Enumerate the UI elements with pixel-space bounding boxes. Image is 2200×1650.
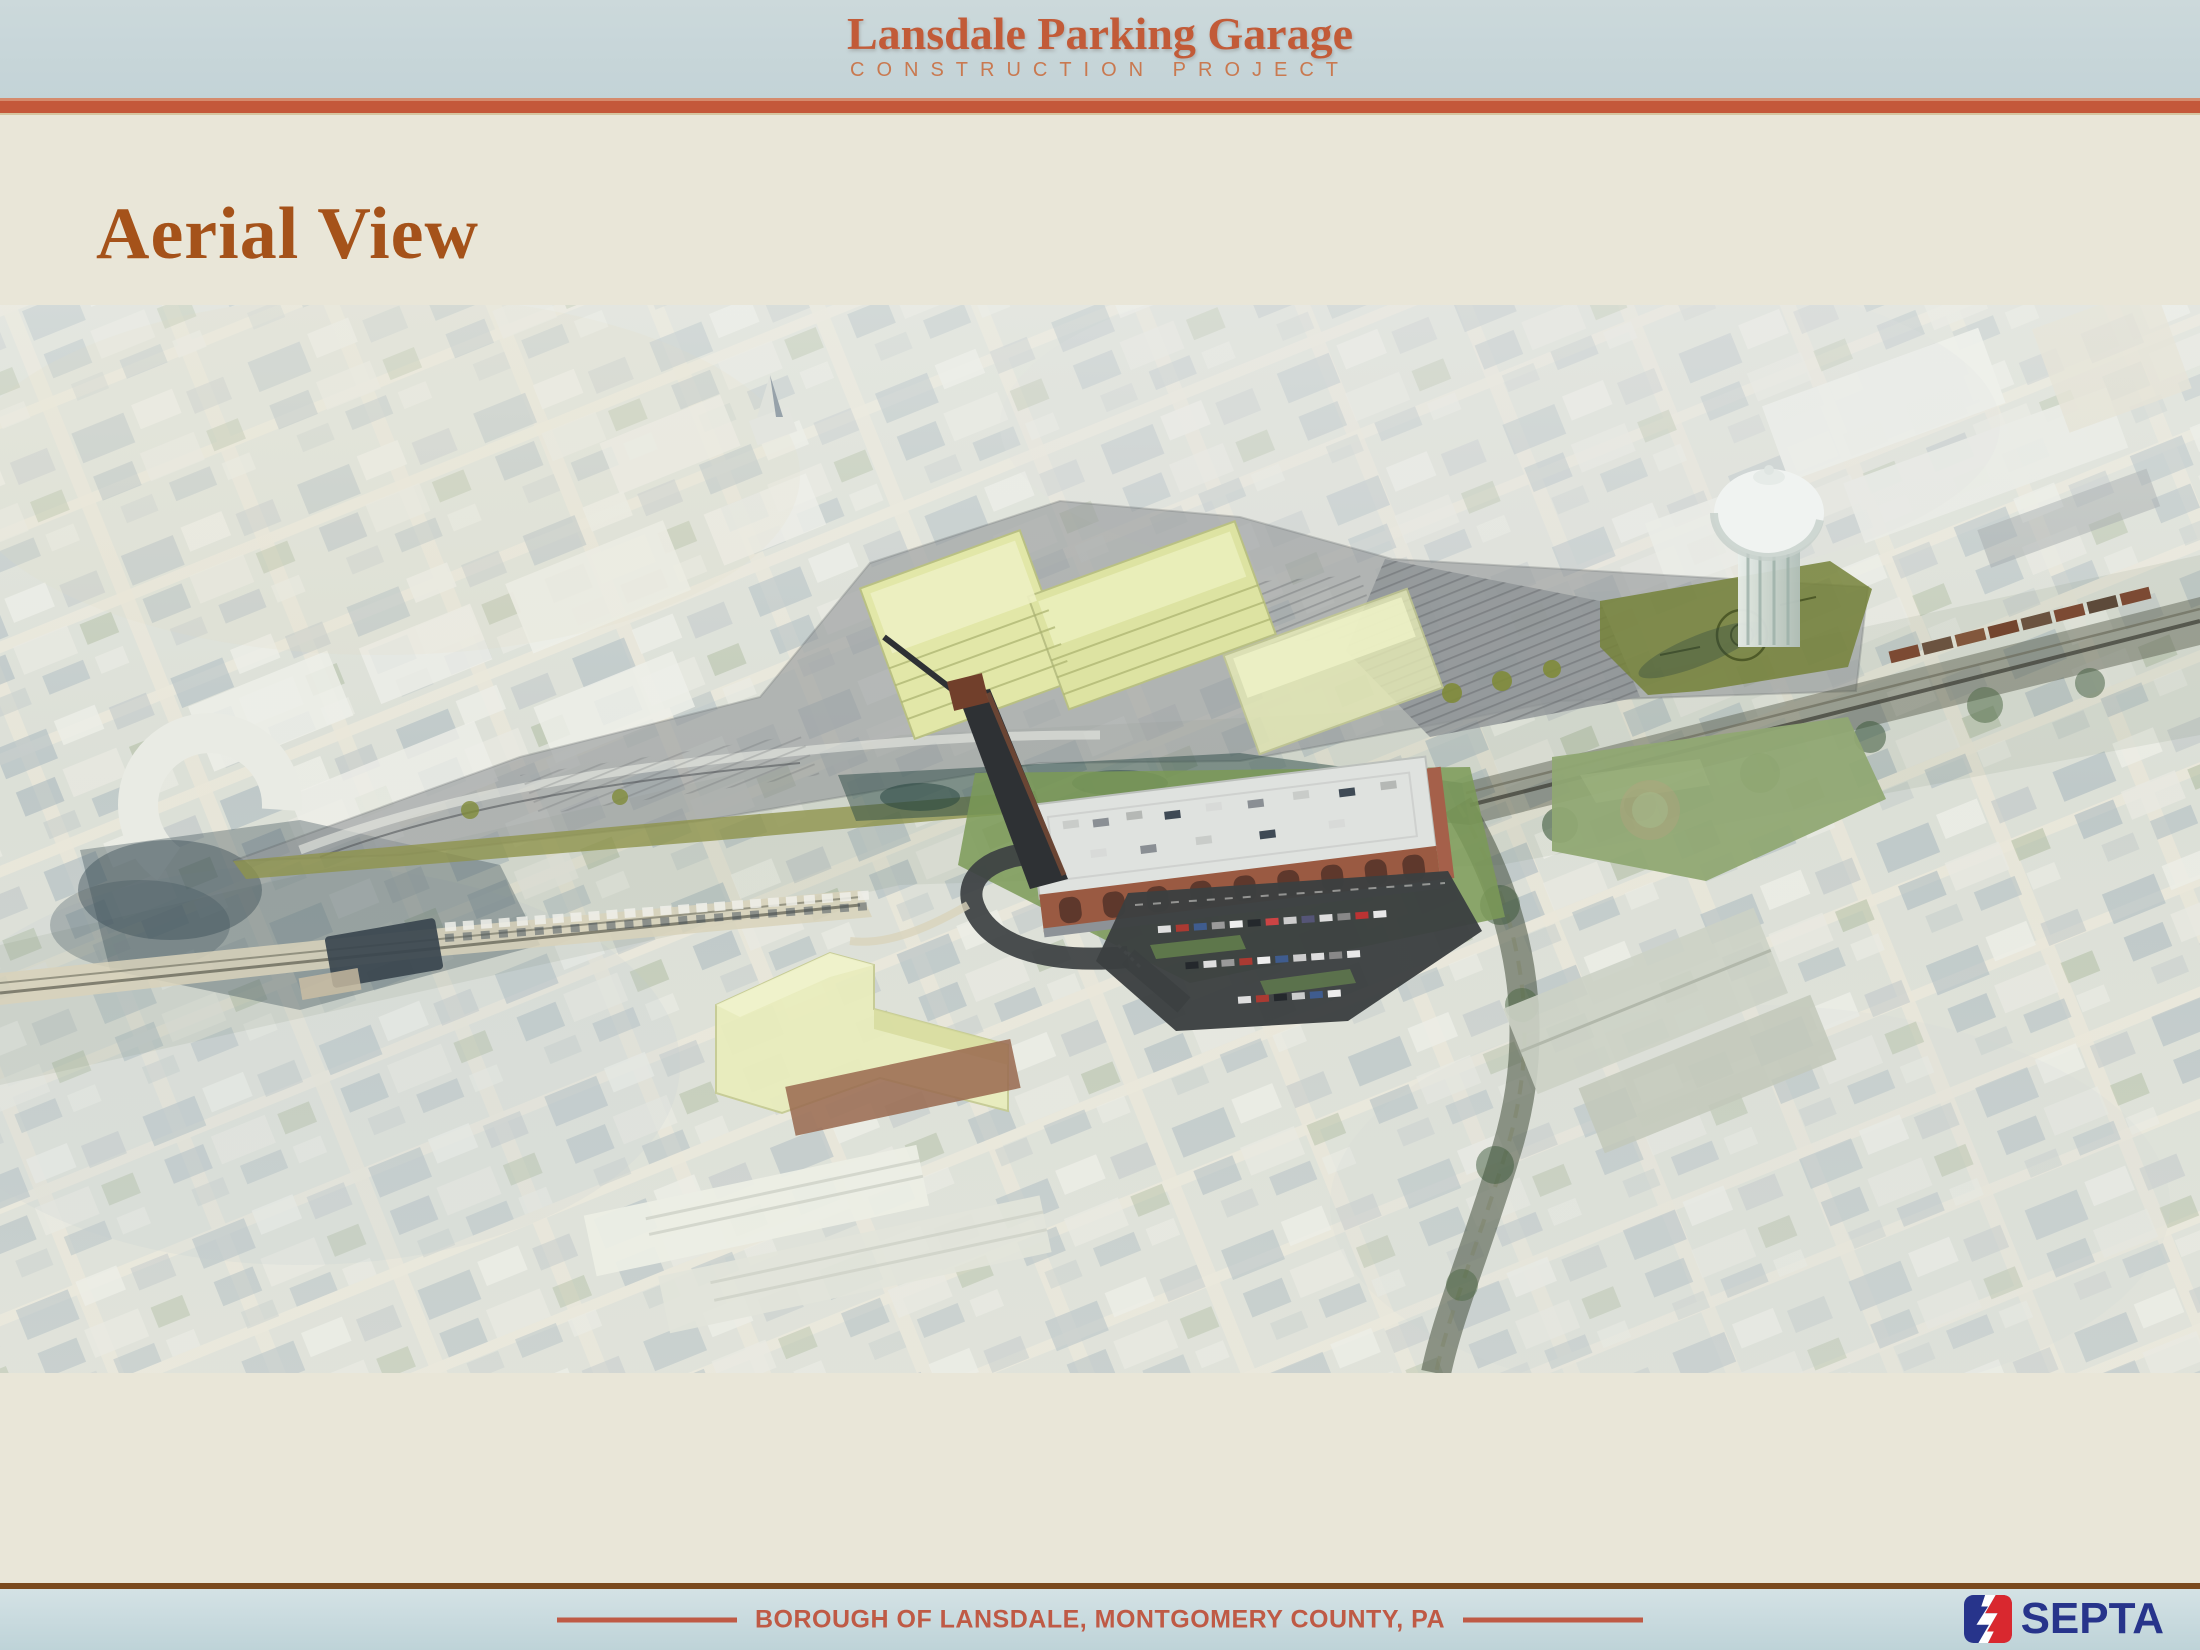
aerial-photo — [0, 305, 2200, 1373]
footer-dash-right — [1463, 1617, 1643, 1622]
page-title: Aerial View — [96, 192, 479, 277]
septa-wordmark: SEPTA — [2021, 1594, 2164, 1644]
project-title: Lansdale Parking Garage — [0, 0, 2200, 58]
project-subtitle: CONSTRUCTION PROJECT — [0, 59, 2200, 82]
septa-logo-icon — [1964, 1595, 2012, 1643]
header-divider — [0, 98, 2200, 115]
septa-brand: SEPTA — [1964, 1594, 2164, 1644]
footer-caption: BOROUGH OF LANSDALE, MONTGOMERY COUNTY, … — [539, 1605, 1661, 1634]
slide-header: Lansdale Parking Garage CONSTRUCTION PRO… — [0, 0, 2200, 98]
slide-root: Lansdale Parking Garage CONSTRUCTION PRO… — [0, 0, 2200, 1650]
footer-location: BOROUGH OF LANSDALE, MONTGOMERY COUNTY, … — [755, 1605, 1445, 1634]
slide-footer: BOROUGH OF LANSDALE, MONTGOMERY COUNTY, … — [0, 1589, 2200, 1650]
footer-dash-left — [557, 1617, 737, 1622]
aerial-photo-canvas — [0, 305, 2200, 1373]
